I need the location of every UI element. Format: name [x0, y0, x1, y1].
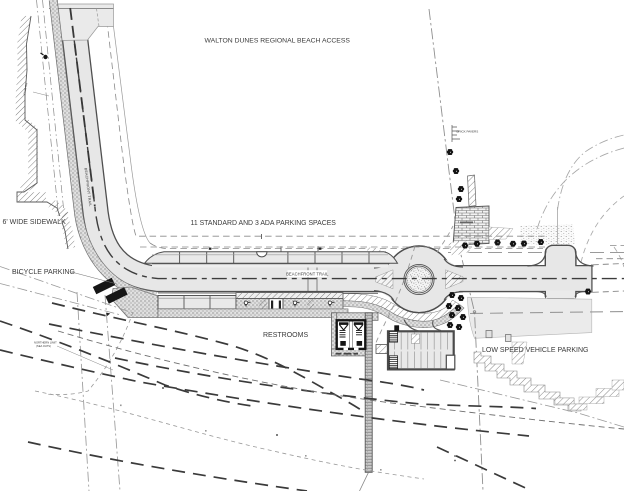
- svg-text:6' WIDE SIDEWALK: 6' WIDE SIDEWALK: [3, 219, 67, 226]
- svg-text:11 STANDARD AND 3 ADA PARKING: 11 STANDARD AND 3 ADA PARKING SPACES: [191, 220, 337, 227]
- svg-text:RESTROOMS: RESTROOMS: [263, 332, 308, 339]
- svg-text:BEACHFRONT TRAIL: BEACHFRONT TRAIL: [286, 271, 329, 276]
- svg-text:(SEA OATS): (SEA OATS): [36, 344, 51, 348]
- svg-text:LOW SPEED VEHICLE PARKING: LOW SPEED VEHICLE PARKING: [482, 347, 588, 354]
- svg-text:BRICK PAVERS: BRICK PAVERS: [457, 130, 479, 134]
- svg-text:BICYCLE PARKING: BICYCLE PARKING: [12, 269, 75, 276]
- svg-text:WALTON DUNES REGIONAL BEACH AC: WALTON DUNES REGIONAL BEACH ACCESS: [205, 38, 351, 45]
- svg-text:NORTHERN LIMIT: NORTHERN LIMIT: [34, 341, 57, 345]
